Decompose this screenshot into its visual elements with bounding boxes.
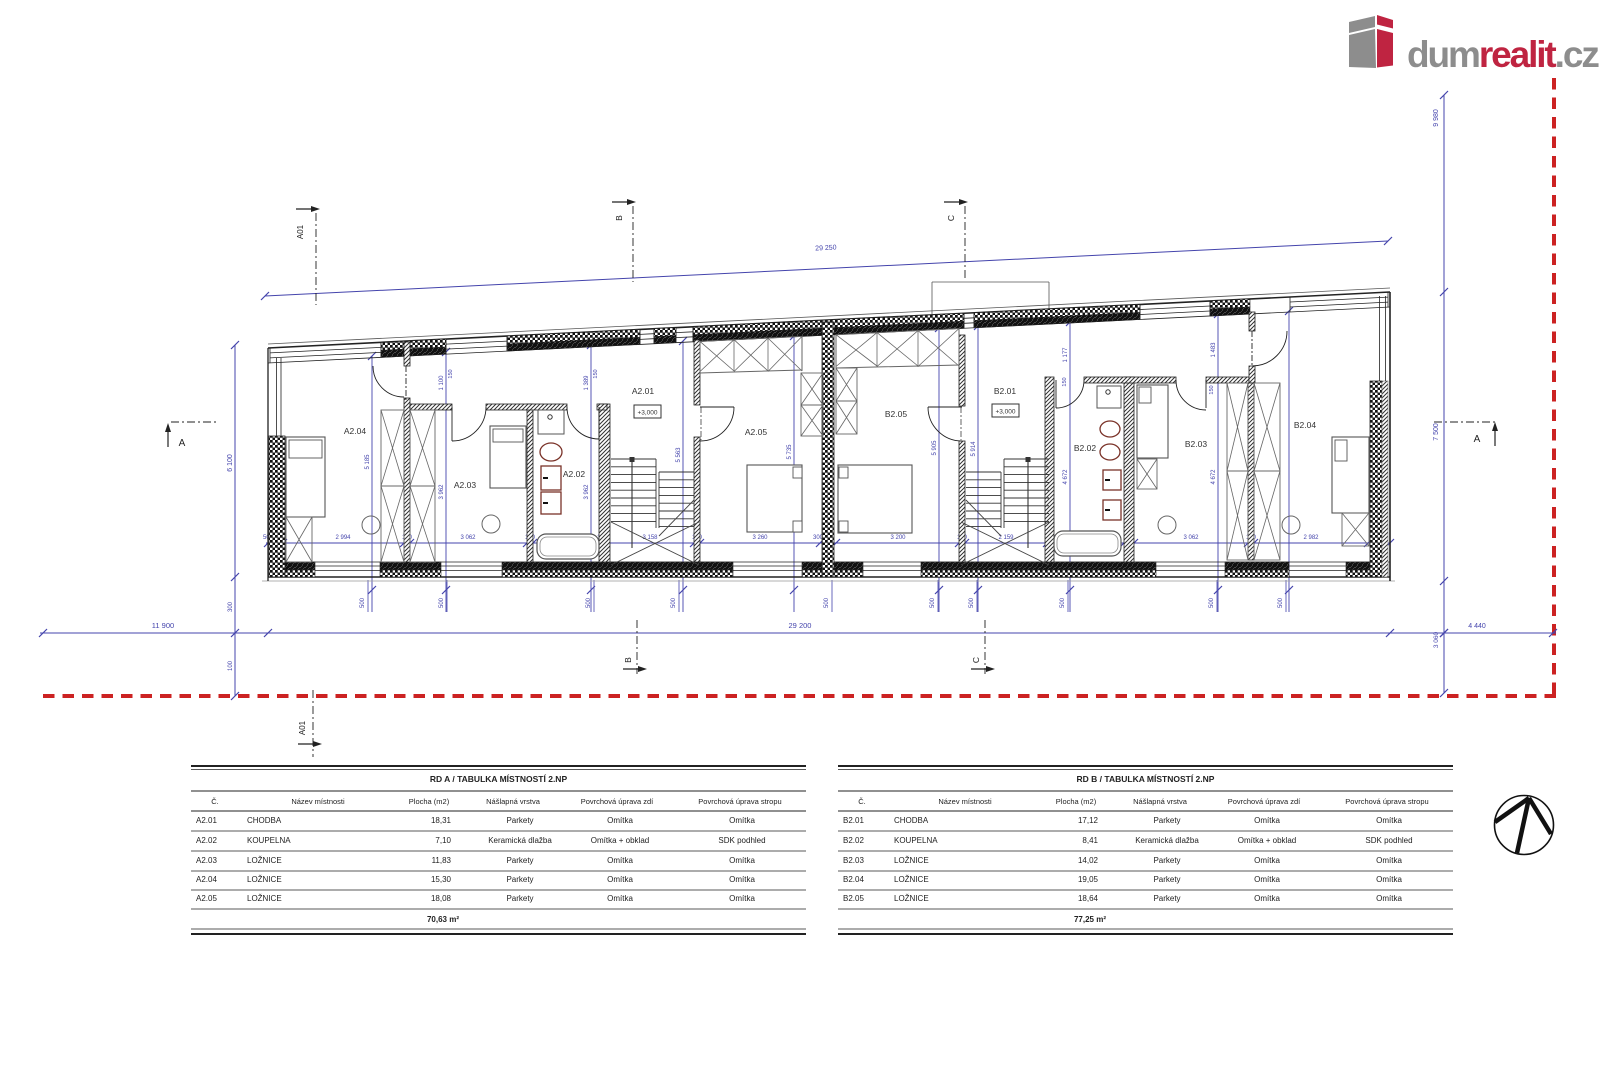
svg-text:500: 500 (439, 597, 445, 608)
svg-text:LOŽNICE: LOŽNICE (894, 875, 929, 884)
svg-text:Parkety: Parkety (506, 894, 533, 903)
svg-text:150: 150 (593, 369, 599, 378)
svg-text:LOŽNICE: LOŽNICE (247, 894, 282, 903)
svg-text:500: 500 (1209, 597, 1215, 608)
svg-text:4 672: 4 672 (1211, 469, 1217, 485)
svg-text:A2.05: A2.05 (745, 427, 767, 437)
svg-text:Omítka: Omítka (1254, 816, 1280, 825)
svg-text:Omítka: Omítka (1254, 894, 1280, 903)
svg-text:300: 300 (228, 601, 234, 612)
svg-text:500: 500 (930, 597, 936, 608)
svg-text:150: 150 (1209, 385, 1215, 394)
svg-text:1 177: 1 177 (1063, 347, 1069, 363)
svg-text:Keramická dlažba: Keramická dlažba (1135, 836, 1199, 845)
svg-text:500: 500 (969, 597, 975, 608)
svg-text:KOUPELNA: KOUPELNA (894, 836, 938, 845)
svg-text:B2.01: B2.01 (994, 386, 1016, 396)
svg-text:3 158: 3 158 (642, 535, 658, 541)
svg-text:B2.02: B2.02 (1074, 443, 1096, 453)
svg-text:A01: A01 (298, 720, 307, 735)
svg-text:29 200: 29 200 (789, 621, 812, 630)
svg-text:Omítka: Omítka (607, 856, 633, 865)
svg-text:CHODBA: CHODBA (894, 816, 929, 825)
svg-text:A2.01: A2.01 (632, 386, 654, 396)
svg-text:Parkety: Parkety (506, 856, 533, 865)
svg-text:18,64: 18,64 (1078, 894, 1099, 903)
svg-text:+3,000: +3,000 (637, 410, 657, 417)
svg-text:14,02: 14,02 (1078, 856, 1099, 865)
svg-text:Název místnosti: Název místnosti (291, 797, 345, 806)
svg-text:70,63 m²: 70,63 m² (427, 915, 459, 924)
svg-text:5 914: 5 914 (971, 441, 977, 457)
svg-text:A2.04: A2.04 (196, 875, 217, 884)
svg-text:RD B / TABULKA MÍSTNOSTÍ 2.NP: RD B / TABULKA MÍSTNOSTÍ 2.NP (1077, 774, 1215, 784)
svg-text:Omítka: Omítka (1376, 856, 1402, 865)
svg-text:Omítka + obklad: Omítka + obklad (591, 836, 649, 845)
svg-text:3 062: 3 062 (460, 535, 476, 541)
svg-text:7 500: 7 500 (1433, 423, 1440, 441)
svg-text:Omítka: Omítka (1254, 875, 1280, 884)
svg-text:500: 500 (1278, 597, 1284, 608)
svg-text:A2.02: A2.02 (196, 836, 217, 845)
svg-text:6 100: 6 100 (227, 454, 234, 472)
svg-text:1 100: 1 100 (439, 375, 445, 391)
svg-text:A2.02: A2.02 (563, 469, 585, 479)
svg-text:2 994: 2 994 (335, 535, 351, 541)
svg-text:B2.04: B2.04 (843, 875, 864, 884)
svg-text:Parkety: Parkety (506, 816, 533, 825)
svg-text:500: 500 (824, 597, 830, 608)
svg-text:15,30: 15,30 (431, 875, 452, 884)
svg-text:11 900: 11 900 (152, 621, 174, 630)
svg-text:Parkety: Parkety (1153, 875, 1180, 884)
svg-text:Nášlapná vrstva: Nášlapná vrstva (1133, 797, 1188, 806)
svg-text:5 735: 5 735 (787, 444, 793, 460)
svg-text:B2.04: B2.04 (1294, 420, 1316, 430)
svg-text:5 905: 5 905 (932, 440, 938, 456)
svg-text:7,10: 7,10 (435, 836, 451, 845)
svg-text:3 962: 3 962 (584, 484, 590, 500)
svg-text:4 440: 4 440 (1468, 623, 1486, 630)
svg-text:B2.02: B2.02 (843, 836, 864, 845)
svg-text:500: 500 (671, 597, 677, 608)
svg-text:Omítka: Omítka (729, 856, 755, 865)
svg-text:A2.03: A2.03 (454, 480, 476, 490)
svg-text:Parkety: Parkety (1153, 894, 1180, 903)
svg-text:Povrchová úprava zdí: Povrchová úprava zdí (1228, 797, 1301, 806)
svg-text:18,31: 18,31 (431, 816, 452, 825)
svg-text:150: 150 (1062, 377, 1068, 386)
svg-text:Č.: Č. (211, 797, 219, 806)
svg-text:2 982: 2 982 (1303, 535, 1319, 541)
svg-text:A2.01: A2.01 (196, 816, 217, 825)
svg-text:4 672: 4 672 (1063, 469, 1069, 485)
svg-text:KOUPELNA: KOUPELNA (247, 836, 291, 845)
svg-text:5 563: 5 563 (676, 447, 682, 463)
svg-text:LOŽNICE: LOŽNICE (247, 875, 282, 884)
svg-text:Název místnosti: Název místnosti (938, 797, 992, 806)
svg-text:Plocha (m2): Plocha (m2) (409, 797, 450, 806)
svg-text:Omítka: Omítka (607, 894, 633, 903)
svg-text:Omítka: Omítka (729, 816, 755, 825)
svg-text:3 962: 3 962 (439, 484, 445, 500)
svg-text:A2.04: A2.04 (344, 426, 366, 436)
svg-text:B: B (623, 657, 633, 663)
svg-text:+3,000: +3,000 (995, 409, 1015, 416)
svg-text:A: A (179, 438, 186, 449)
svg-text:C: C (971, 657, 981, 663)
svg-text:B2.05: B2.05 (843, 894, 864, 903)
svg-text:18,08: 18,08 (431, 894, 452, 903)
svg-text:SDK podhled: SDK podhled (1365, 836, 1412, 845)
svg-text:Povrchová úprava stropu: Povrchová úprava stropu (698, 797, 781, 806)
svg-text:Omítka: Omítka (607, 816, 633, 825)
svg-text:CHODBA: CHODBA (247, 816, 282, 825)
svg-text:5 185: 5 185 (365, 454, 371, 470)
svg-text:Omítka + obklad: Omítka + obklad (1238, 836, 1296, 845)
svg-text:B2.03: B2.03 (843, 856, 864, 865)
svg-text:9 980: 9 980 (1433, 109, 1440, 127)
svg-text:17,12: 17,12 (1078, 816, 1099, 825)
svg-text:Povrchová úprava stropu: Povrchová úprava stropu (1345, 797, 1428, 806)
svg-text:500: 500 (1060, 597, 1066, 608)
svg-text:Omítka: Omítka (729, 875, 755, 884)
svg-text:SDK podhled: SDK podhled (718, 836, 765, 845)
svg-text:Omítka: Omítka (1376, 816, 1402, 825)
svg-text:500: 500 (586, 597, 592, 608)
svg-text:Parkety: Parkety (1153, 856, 1180, 865)
svg-text:C: C (946, 215, 956, 221)
svg-text:Omítka: Omítka (1376, 875, 1402, 884)
svg-text:B2.03: B2.03 (1185, 439, 1207, 449)
svg-text:A: A (1474, 434, 1481, 445)
svg-text:Parkety: Parkety (1153, 816, 1180, 825)
svg-text:Plocha (m2): Plocha (m2) (1056, 797, 1097, 806)
svg-text:A01: A01 (296, 224, 305, 239)
svg-text:8,41: 8,41 (1082, 836, 1098, 845)
svg-text:3 060: 3 060 (1433, 631, 1440, 648)
svg-text:1 483: 1 483 (1211, 342, 1217, 358)
svg-text:77,25 m²: 77,25 m² (1074, 915, 1106, 924)
svg-text:B2.05: B2.05 (885, 409, 907, 419)
svg-text:Parkety: Parkety (506, 875, 533, 884)
svg-text:RD A / TABULKA MÍSTNOSTÍ 2.NP: RD A / TABULKA MÍSTNOSTÍ 2.NP (430, 774, 568, 784)
svg-text:150: 150 (448, 369, 454, 378)
svg-text:B: B (614, 215, 624, 221)
svg-text:dumrealit.cz: dumrealit.cz (1407, 34, 1599, 75)
svg-text:Omítka: Omítka (607, 875, 633, 884)
svg-text:11,83: 11,83 (432, 856, 452, 865)
svg-text:1 389: 1 389 (584, 375, 590, 391)
svg-text:Omítka: Omítka (729, 894, 755, 903)
svg-text:3 200: 3 200 (890, 535, 906, 541)
svg-text:Povrchová úprava zdí: Povrchová úprava zdí (581, 797, 654, 806)
svg-text:29 250: 29 250 (815, 244, 837, 252)
svg-text:A2.03: A2.03 (196, 856, 217, 865)
svg-text:3 062: 3 062 (1183, 535, 1199, 541)
svg-text:100: 100 (228, 660, 234, 671)
svg-text:Keramická dlažba: Keramická dlažba (488, 836, 552, 845)
svg-text:B2.01: B2.01 (843, 816, 864, 825)
svg-text:3 260: 3 260 (752, 535, 768, 541)
svg-text:Omítka: Omítka (1254, 856, 1280, 865)
svg-text:19,05: 19,05 (1078, 875, 1099, 884)
svg-text:Nášlapná vrstva: Nášlapná vrstva (486, 797, 541, 806)
svg-text:LOŽNICE: LOŽNICE (894, 856, 929, 865)
svg-text:LOŽNICE: LOŽNICE (247, 856, 282, 865)
svg-text:A2.05: A2.05 (196, 894, 217, 903)
svg-text:Č.: Č. (858, 797, 866, 806)
svg-text:LOŽNICE: LOŽNICE (894, 894, 929, 903)
svg-text:500: 500 (360, 597, 366, 608)
svg-text:Omítka: Omítka (1376, 894, 1402, 903)
